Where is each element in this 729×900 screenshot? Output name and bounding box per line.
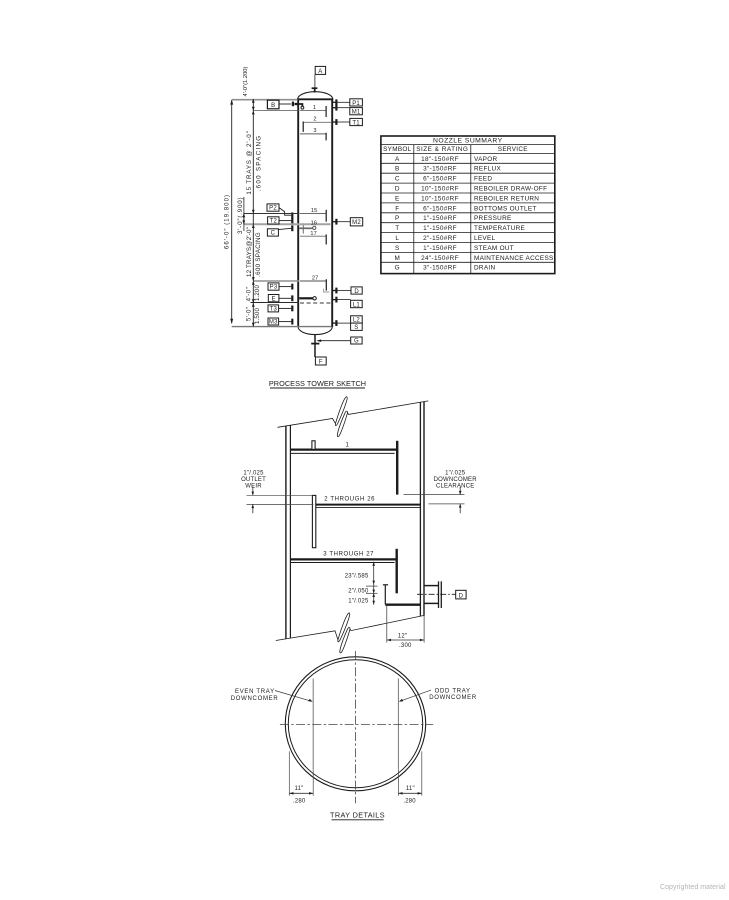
svg-text:10"-150#RF: 10"-150#RF [421,186,459,193]
svg-text:DOWNCOMER: DOWNCOMER [434,477,478,483]
svg-text:4'-0"(1.200): 4'-0"(1.200) [243,66,249,96]
svg-text:1.500: 1.500 [254,308,261,324]
svg-text:6"-150#RF: 6"-150#RF [423,176,457,183]
svg-text:.600 SPACING: .600 SPACING [256,135,263,192]
svg-text:P3: P3 [270,285,278,291]
svg-text:T3: T3 [270,307,278,313]
svg-text:WEIR: WEIR [245,484,262,490]
svg-text:PRESSURE: PRESSURE [474,215,512,222]
svg-text:3"-150#RF: 3"-150#RF [423,265,457,272]
svg-text:M1: M1 [352,110,361,116]
svg-text:VAPOR: VAPOR [474,156,497,163]
svg-text:G: G [354,339,359,345]
svg-text:.280: .280 [293,799,306,805]
svg-text:3 THROUGH 27: 3 THROUGH 27 [323,552,374,558]
svg-text:T: T [395,225,399,232]
svg-text:1: 1 [313,105,316,111]
svg-text:TRAY DETAILS: TRAY DETAILS [330,810,385,819]
svg-text:Copyrighted material: Copyrighted material [660,884,726,891]
svg-text:3'-0"(.900): 3'-0"(.900) [237,197,244,234]
svg-text:BOTTOMS OUTLET: BOTTOMS OUTLET [474,205,537,212]
svg-text:4'-0": 4'-0" [246,287,253,302]
svg-text:DOWNCOMER: DOWNCOMER [429,695,477,701]
svg-text:1.200: 1.200 [254,285,261,301]
svg-text:P: P [395,215,400,222]
svg-text:3: 3 [313,128,316,134]
svg-text:1"/.025: 1"/.025 [243,471,264,477]
svg-text:27: 27 [312,275,319,281]
svg-text:F: F [319,360,323,366]
svg-text:1"/.025: 1"/.025 [445,471,466,477]
svg-text:L1: L1 [353,302,361,308]
svg-text:M3: M3 [269,320,278,326]
svg-text:DOWNCOMER: DOWNCOMER [231,696,279,702]
svg-text:EVEN TRAY: EVEN TRAY [235,689,275,695]
svg-text:C: C [271,231,276,237]
svg-text:.280: .280 [403,799,416,805]
svg-text:G: G [395,265,400,272]
svg-text:LEVEL: LEVEL [474,235,496,242]
svg-text:TEMPERATURE: TEMPERATURE [474,225,525,232]
svg-text:E: E [395,195,400,202]
svg-text:ODD TRAY: ODD TRAY [435,689,471,695]
svg-text:12": 12" [398,634,407,640]
svg-text:11": 11" [295,786,304,792]
svg-text:15: 15 [311,208,318,214]
svg-text:2"/.050: 2"/.050 [348,588,369,594]
svg-text:5'-0": 5'-0" [246,306,253,321]
svg-text:23"/.585: 23"/.585 [345,574,369,580]
svg-text:10"-150#RF: 10"-150#RF [421,195,459,202]
svg-text:S: S [395,245,400,252]
svg-text:SERVICE: SERVICE [498,146,528,153]
svg-text:2"-150#RF: 2"-150#RF [423,235,457,242]
svg-text:F: F [395,205,399,212]
svg-text:24"-150#RF: 24"-150#RF [421,255,459,262]
svg-text:T1: T1 [352,120,360,126]
svg-text:C: C [395,176,400,183]
svg-text:16: 16 [311,220,318,226]
svg-text:15 TRAYS @ 2'-0": 15 TRAYS @ 2'-0" [246,130,253,194]
svg-text:1"-150#RF: 1"-150#RF [423,215,457,222]
svg-text:3"-150#RF: 3"-150#RF [423,166,457,173]
svg-text:STEAM OUT: STEAM OUT [474,245,514,252]
svg-text:REBOILER DRAW-OFF: REBOILER DRAW-OFF [474,186,547,193]
svg-text:66'-0" (19.800): 66'-0" (19.800) [225,194,231,249]
svg-text:A: A [318,69,322,75]
svg-text:M2: M2 [352,220,361,226]
svg-text:NOZZLE SUMMARY: NOZZLE SUMMARY [433,138,503,145]
svg-text:OUTLET: OUTLET [241,477,266,483]
svg-text:1"/.025: 1"/.025 [348,599,369,605]
svg-text:M: M [394,255,400,262]
svg-text:1: 1 [346,443,350,449]
svg-text:D: D [354,289,359,295]
svg-text:D: D [395,186,400,193]
svg-text:.600 SPACING: .600 SPACING [255,232,262,277]
svg-text:A: A [395,156,400,163]
svg-text:P1: P1 [352,101,360,107]
svg-text:18"-150#RF: 18"-150#RF [421,156,459,163]
svg-text:PROCESS TOWER SKETCH: PROCESS TOWER SKETCH [269,379,366,388]
svg-text:MAINTENANCE ACCESS: MAINTENANCE ACCESS [474,255,554,262]
svg-text:REBOILER RETURN: REBOILER RETURN [474,195,539,202]
svg-text:D: D [459,593,464,599]
svg-text:12 TRAYS@2'-0": 12 TRAYS@2'-0" [246,227,253,277]
svg-text:B: B [395,166,400,173]
svg-text:L: L [395,235,399,242]
svg-text:REFLUX: REFLUX [474,166,501,173]
svg-text:1"-150#RF: 1"-150#RF [423,225,457,232]
svg-text:DRAIN: DRAIN [474,265,495,272]
svg-text:1"-150#RF: 1"-150#RF [423,245,457,252]
svg-text:CLEARANCE: CLEARANCE [436,484,474,490]
svg-text:SIZE & RATING: SIZE & RATING [416,146,468,153]
svg-text:P2: P2 [269,206,277,212]
svg-text:E: E [271,296,275,302]
svg-text:B: B [271,103,275,109]
svg-text:L2: L2 [353,318,361,324]
svg-text:11": 11" [406,786,415,792]
svg-text:S: S [354,325,358,331]
svg-text:SYMBOL: SYMBOL [383,146,412,153]
svg-text:17: 17 [310,231,317,237]
svg-text:6"-150#RF: 6"-150#RF [423,205,457,212]
svg-text:2 THROUGH 26: 2 THROUGH 26 [324,496,375,502]
svg-text:T2: T2 [270,219,278,225]
svg-text:FEED: FEED [474,176,492,183]
svg-text:2: 2 [313,117,316,123]
svg-text:.300: .300 [399,643,412,649]
